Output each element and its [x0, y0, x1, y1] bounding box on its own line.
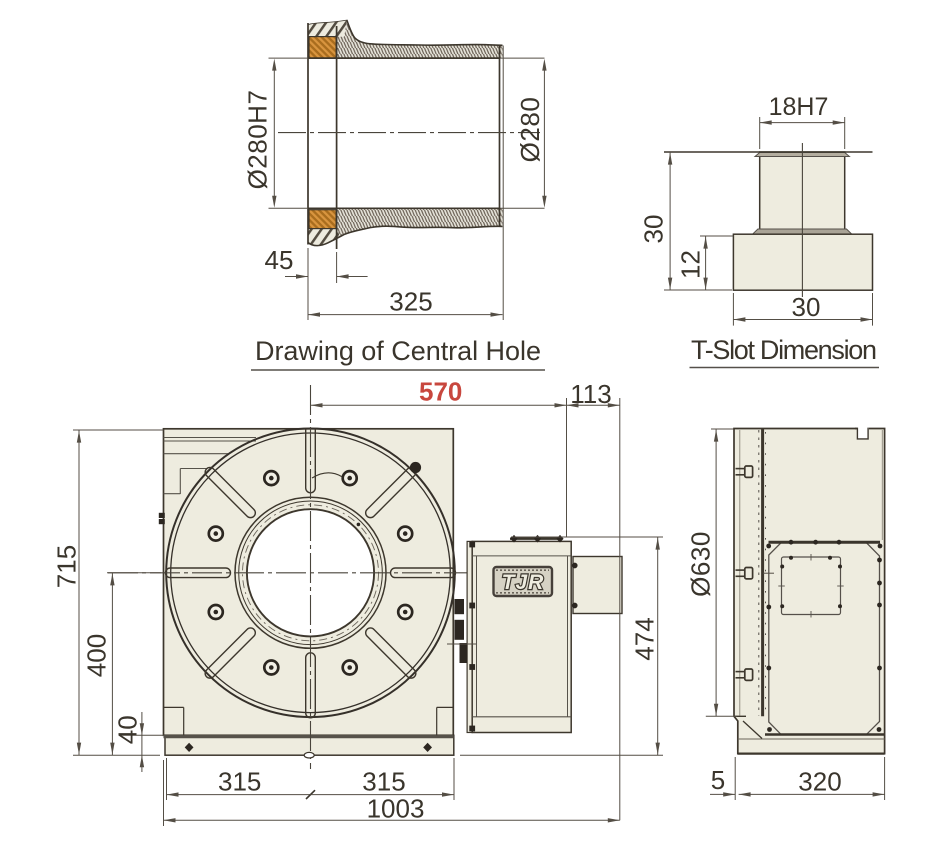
- svg-text:474: 474: [630, 617, 660, 660]
- svg-text:TJR: TJR: [502, 571, 545, 594]
- svg-text:Ø630: Ø630: [686, 531, 716, 597]
- svg-text:T-Slot Dimension: T-Slot Dimension: [691, 335, 877, 365]
- svg-text:325: 325: [389, 287, 432, 317]
- svg-text:Ø280: Ø280: [515, 97, 545, 163]
- svg-text:30: 30: [639, 215, 669, 244]
- svg-text:45: 45: [265, 245, 294, 275]
- svg-text:18H7: 18H7: [769, 93, 829, 121]
- svg-text:5: 5: [711, 765, 725, 795]
- svg-text:40: 40: [113, 715, 143, 744]
- svg-text:715: 715: [52, 545, 82, 588]
- svg-text:1003: 1003: [367, 794, 425, 824]
- svg-text:400: 400: [82, 634, 112, 677]
- svg-text:570: 570: [419, 377, 462, 407]
- svg-text:Ø280H7: Ø280H7: [243, 90, 273, 190]
- svg-text:30: 30: [792, 292, 821, 322]
- svg-text:113: 113: [570, 379, 611, 409]
- svg-text:315: 315: [362, 767, 405, 797]
- svg-text:12: 12: [676, 250, 706, 279]
- svg-text:315: 315: [218, 767, 261, 797]
- svg-text:320: 320: [798, 767, 841, 797]
- svg-text:Drawing of Central Hole: Drawing of Central Hole: [255, 336, 541, 366]
